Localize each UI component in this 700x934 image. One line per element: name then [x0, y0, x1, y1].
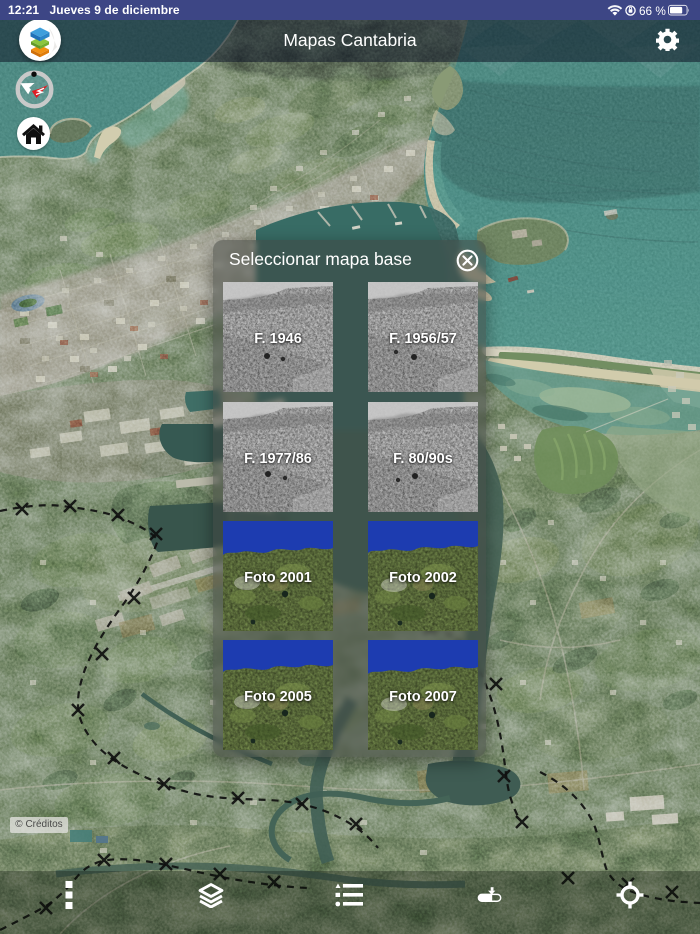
- svg-text:66 %: 66 %: [639, 4, 666, 18]
